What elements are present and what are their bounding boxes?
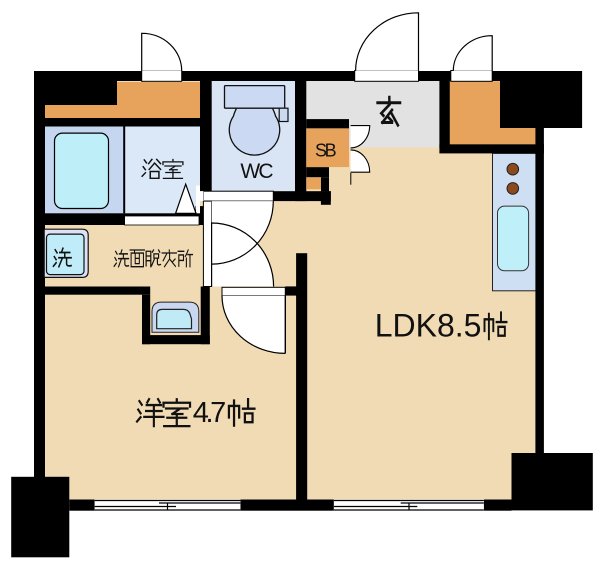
- svg-text:SB: SB: [315, 141, 337, 161]
- svg-text:WC: WC: [240, 160, 273, 183]
- svg-text:LDK8.5: LDK8.5: [375, 308, 482, 344]
- svg-text:4.7: 4.7: [193, 397, 227, 429]
